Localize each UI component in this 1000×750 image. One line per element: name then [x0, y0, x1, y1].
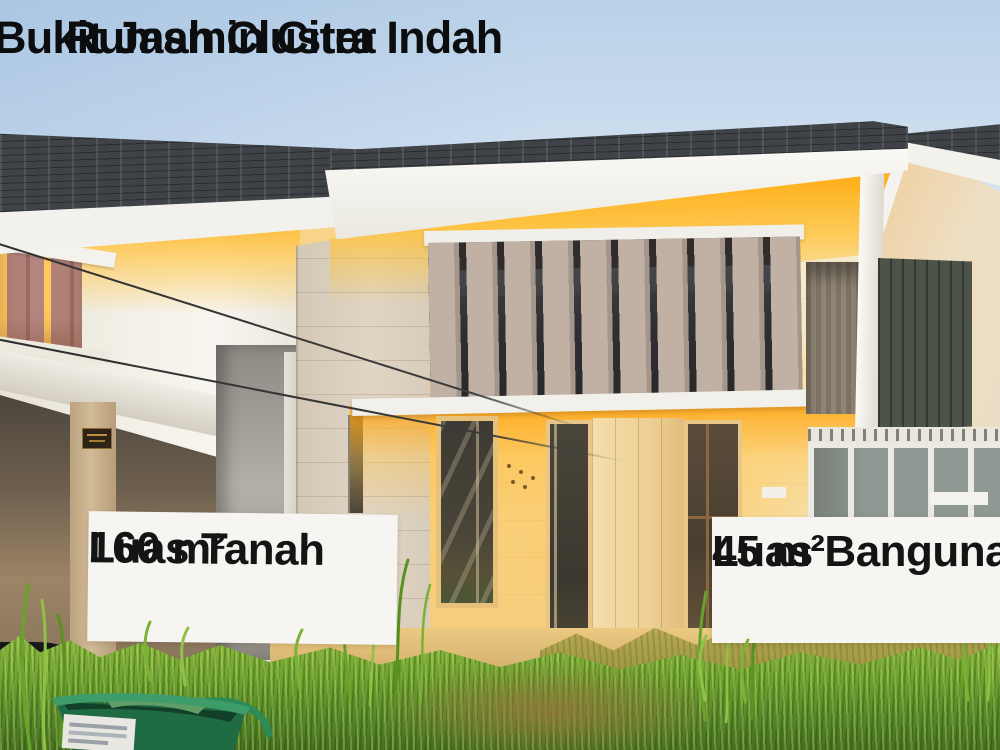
title-line-2: Bukit Jasmin Citra Indah — [0, 14, 502, 62]
right-house-windows — [808, 443, 1000, 519]
listing-photo: Rumah Cluster Bukit Jasmin Citra Indah L… — [0, 0, 1000, 750]
right-house-window-sill — [930, 492, 988, 505]
right-house-railing — [808, 427, 1000, 443]
wall-ledge — [762, 487, 786, 498]
house-number-plaque — [82, 428, 112, 449]
foreground-grass-blades — [0, 540, 1000, 750]
louver-facade — [428, 237, 803, 407]
wall-vent-holes — [507, 464, 511, 468]
right-house-dark-panel — [878, 258, 972, 430]
vertical-fins — [428, 237, 803, 407]
